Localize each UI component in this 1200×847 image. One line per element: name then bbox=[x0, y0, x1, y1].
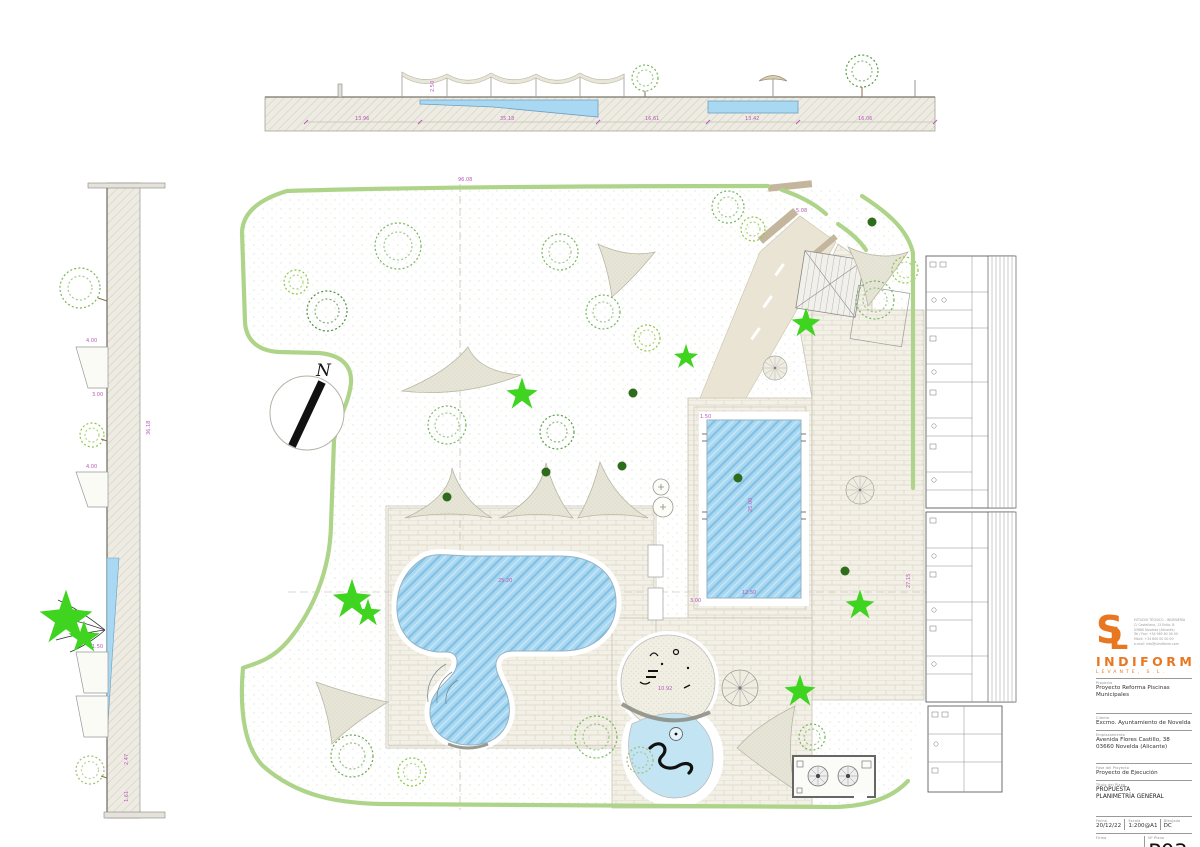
svg-text:N: N bbox=[315, 361, 332, 381]
site-address-1: Avenida Flores Castillo, 38 bbox=[1096, 737, 1192, 744]
bush-icon bbox=[618, 462, 627, 471]
kids-pool-area: 10.92 bbox=[617, 631, 719, 803]
bush-icon bbox=[868, 218, 877, 227]
svg-text:10.92: 10.92 bbox=[658, 686, 672, 692]
tree bbox=[76, 756, 104, 784]
company-logo: S L ESTUDIO TÉCNICO - INGENIERÍA C/ Cast… bbox=[1096, 614, 1192, 654]
north-arrow: N bbox=[270, 361, 344, 450]
section-umbrella bbox=[759, 76, 787, 98]
svg-text:12.50: 12.50 bbox=[742, 590, 756, 596]
section-lap-pool bbox=[708, 101, 798, 113]
svg-text:3.00: 3.00 bbox=[92, 392, 103, 398]
svg-text:1.61: 1.61 bbox=[124, 791, 130, 802]
date-value: 20/12/22 bbox=[1096, 823, 1122, 830]
umbrella-icon bbox=[722, 670, 758, 706]
bush-icon bbox=[443, 493, 452, 502]
signature-box: Firma bbox=[1096, 836, 1144, 847]
svg-text:4.00: 4.00 bbox=[86, 338, 97, 344]
tree bbox=[846, 55, 878, 87]
pavilion-roof bbox=[796, 251, 864, 318]
svg-text:2.50: 2.50 bbox=[430, 81, 436, 92]
building-changing-rooms bbox=[926, 256, 1016, 792]
site-address-2: 03660 Novelda (Alicante) bbox=[1096, 744, 1192, 751]
svg-text:4.00: 4.00 bbox=[86, 464, 97, 470]
side-shade-sails bbox=[76, 347, 108, 737]
svg-text:96.08: 96.08 bbox=[458, 177, 472, 183]
svg-text:16.61: 16.61 bbox=[645, 116, 659, 122]
bush-icon bbox=[629, 389, 638, 398]
svg-text:1.50: 1.50 bbox=[700, 414, 711, 420]
section-ground bbox=[265, 97, 935, 131]
plant-room bbox=[793, 756, 875, 799]
sheet-number-box: Nº Plano P03 bbox=[1144, 836, 1192, 847]
svg-text:16.06: 16.06 bbox=[858, 116, 872, 122]
company-contact: ESTUDIO TÉCNICO - INGENIERÍA C/ Castella… bbox=[1134, 614, 1185, 647]
side-ground bbox=[107, 183, 140, 818]
svg-text:27.15: 27.15 bbox=[906, 574, 912, 588]
top-section-elevation: 13.96 35.18 16.61 13.42 16.06 2.50 bbox=[265, 55, 937, 131]
site-plan: 25.20 25.00 12.50 1.50 bbox=[242, 177, 930, 810]
svg-text:1.50: 1.50 bbox=[92, 644, 103, 650]
client-name: Excmo. Ayuntamiento de Novelda bbox=[1096, 720, 1192, 727]
svg-text:35.18: 35.18 bbox=[500, 116, 514, 122]
company-subname: LEVANTE, S.L. bbox=[1096, 670, 1192, 675]
title-block: S L ESTUDIO TÉCNICO - INGENIERÍA C/ Cast… bbox=[1096, 614, 1192, 847]
svg-text:36.18: 36.18 bbox=[146, 421, 152, 435]
drawn-by-value: DC bbox=[1164, 823, 1190, 830]
bush-icon bbox=[734, 474, 743, 483]
umbrella-icon bbox=[763, 356, 787, 380]
logo-monogram: S L bbox=[1096, 614, 1130, 654]
palm-tree bbox=[40, 590, 105, 652]
bush-icon bbox=[841, 567, 850, 576]
umbrella-icon bbox=[846, 476, 874, 504]
lap-pool: 25.00 12.50 1.50 bbox=[699, 412, 809, 606]
bush-icon bbox=[542, 468, 551, 477]
sheet-number: P03 bbox=[1148, 840, 1192, 847]
svg-text:5.08: 5.08 bbox=[796, 208, 807, 214]
sheet-title-2: PLANIMETRÍA GENERAL bbox=[1096, 794, 1192, 802]
project-title: Proyecto Reforma Piscinas Municipales bbox=[1096, 685, 1192, 699]
side-section-elevation: 4.00 3.00 4.00 1.50 36.18 2.47 1.61 bbox=[40, 183, 165, 818]
scale-value: 1:200@A1 bbox=[1128, 823, 1157, 830]
date-scale-row: Fecha 20/12/22 Escala 1:200@A1 Dibujado … bbox=[1096, 819, 1192, 830]
plan-canvas: 13.96 35.18 16.61 13.42 16.06 2.50 bbox=[0, 0, 1200, 847]
svg-text:13.42: 13.42 bbox=[745, 116, 759, 122]
section-wall bbox=[338, 84, 342, 97]
svg-text:13.96: 13.96 bbox=[355, 116, 369, 122]
svg-text:25.00: 25.00 bbox=[748, 498, 754, 512]
svg-text:25.20: 25.20 bbox=[498, 578, 512, 584]
project-phase: Proyecto de Ejecución bbox=[1096, 770, 1192, 777]
signature bbox=[1096, 840, 1140, 847]
tree bbox=[60, 268, 100, 308]
svg-text:3.00: 3.00 bbox=[690, 598, 701, 604]
tree bbox=[80, 423, 104, 447]
tree bbox=[632, 65, 658, 91]
svg-text:2.47: 2.47 bbox=[124, 754, 130, 765]
drawing-sheet: 13.96 35.18 16.61 13.42 16.06 2.50 bbox=[0, 0, 1200, 847]
